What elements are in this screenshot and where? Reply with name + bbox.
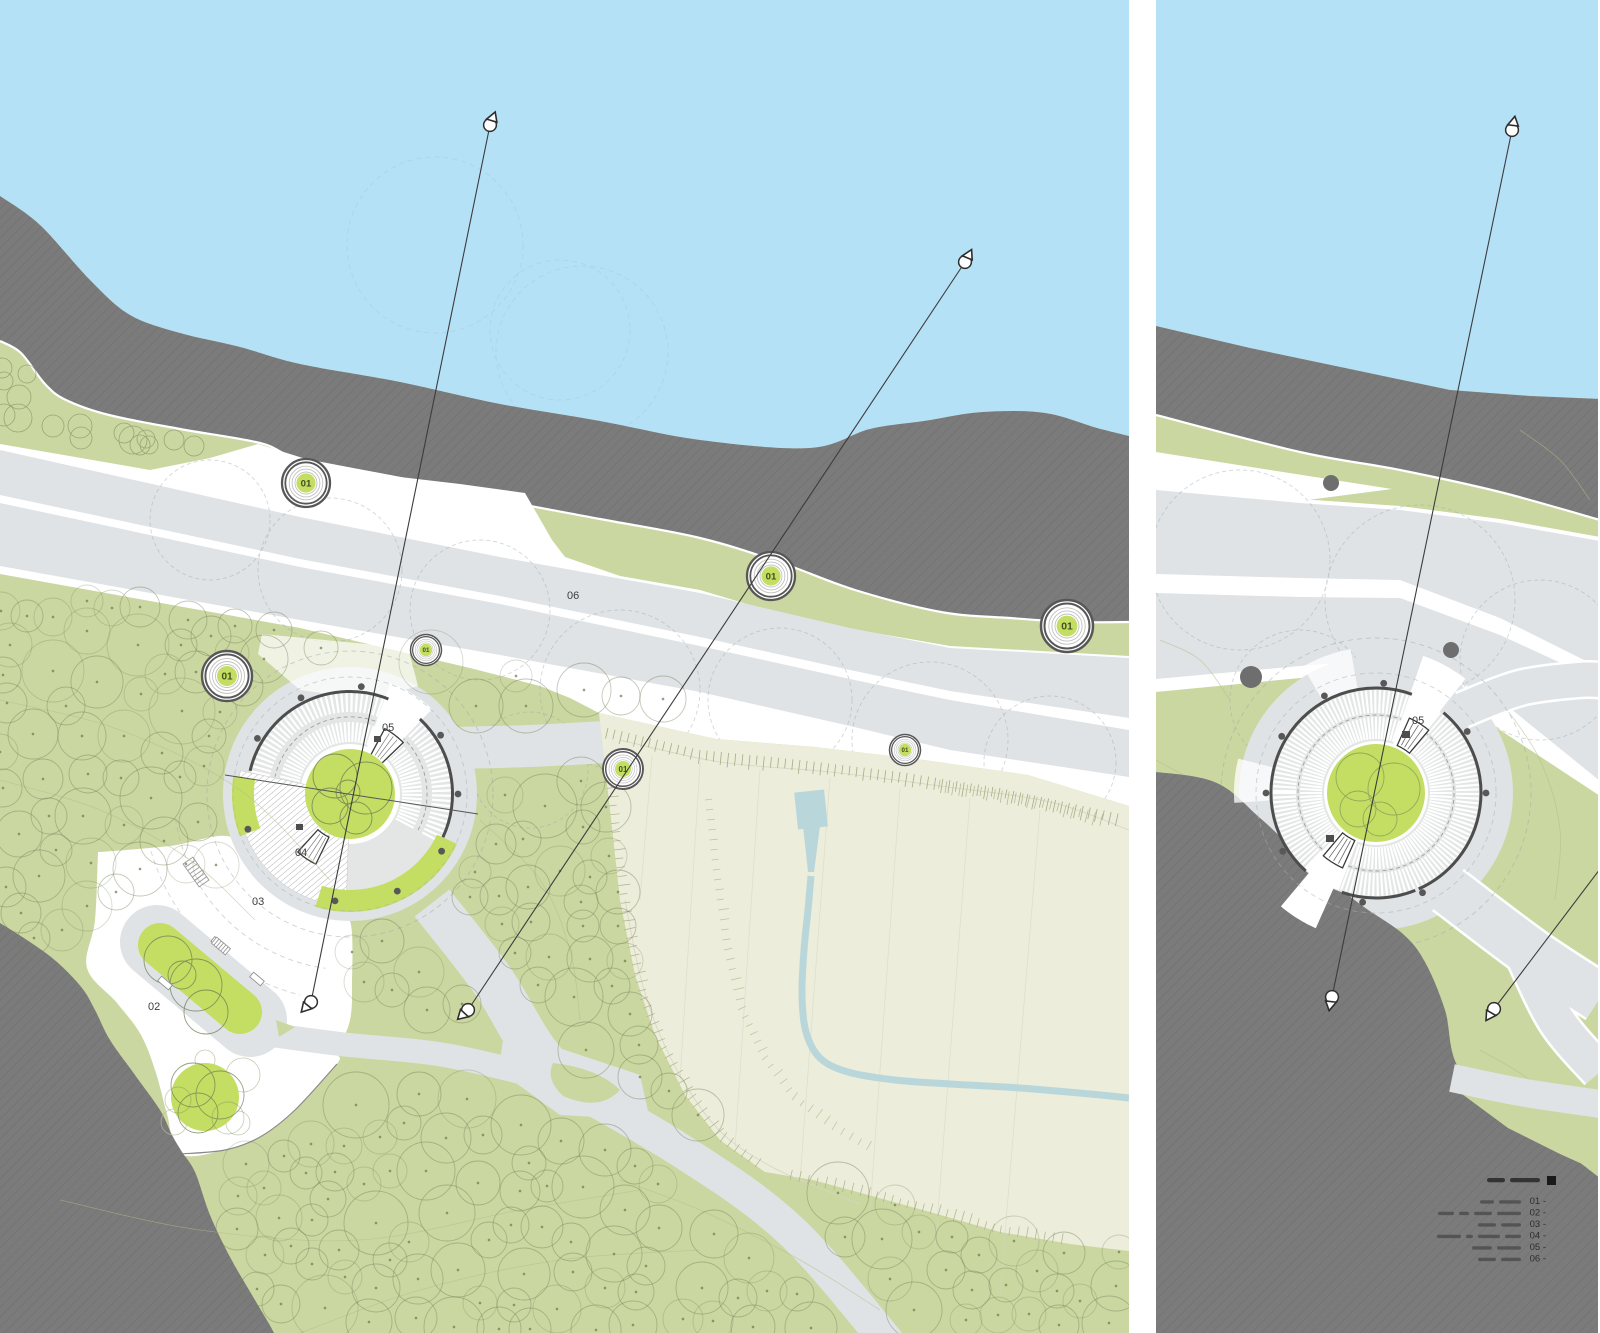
svg-text:01: 01 [301, 479, 312, 490]
svg-text:03 -: 03 - [1530, 1219, 1546, 1230]
svg-text:01 -: 01 - [1530, 1196, 1546, 1207]
svg-text:02 -: 02 - [1530, 1208, 1546, 1219]
svg-text:01: 01 [619, 765, 628, 774]
svg-text:01: 01 [1061, 622, 1073, 633]
svg-text:05: 05 [1412, 715, 1424, 727]
svg-text:04 -: 04 - [1530, 1231, 1546, 1242]
svg-text:06 -: 06 - [1530, 1254, 1546, 1265]
svg-text:05: 05 [382, 722, 394, 734]
svg-text:01: 01 [423, 647, 430, 654]
svg-text:02: 02 [148, 1001, 160, 1013]
svg-text:03: 03 [252, 896, 264, 908]
svg-text:06: 06 [567, 590, 579, 602]
svg-text:01: 01 [902, 747, 909, 754]
svg-text:05 -: 05 - [1530, 1242, 1546, 1253]
svg-text:01: 01 [221, 672, 233, 683]
svg-text:01: 01 [766, 572, 777, 583]
